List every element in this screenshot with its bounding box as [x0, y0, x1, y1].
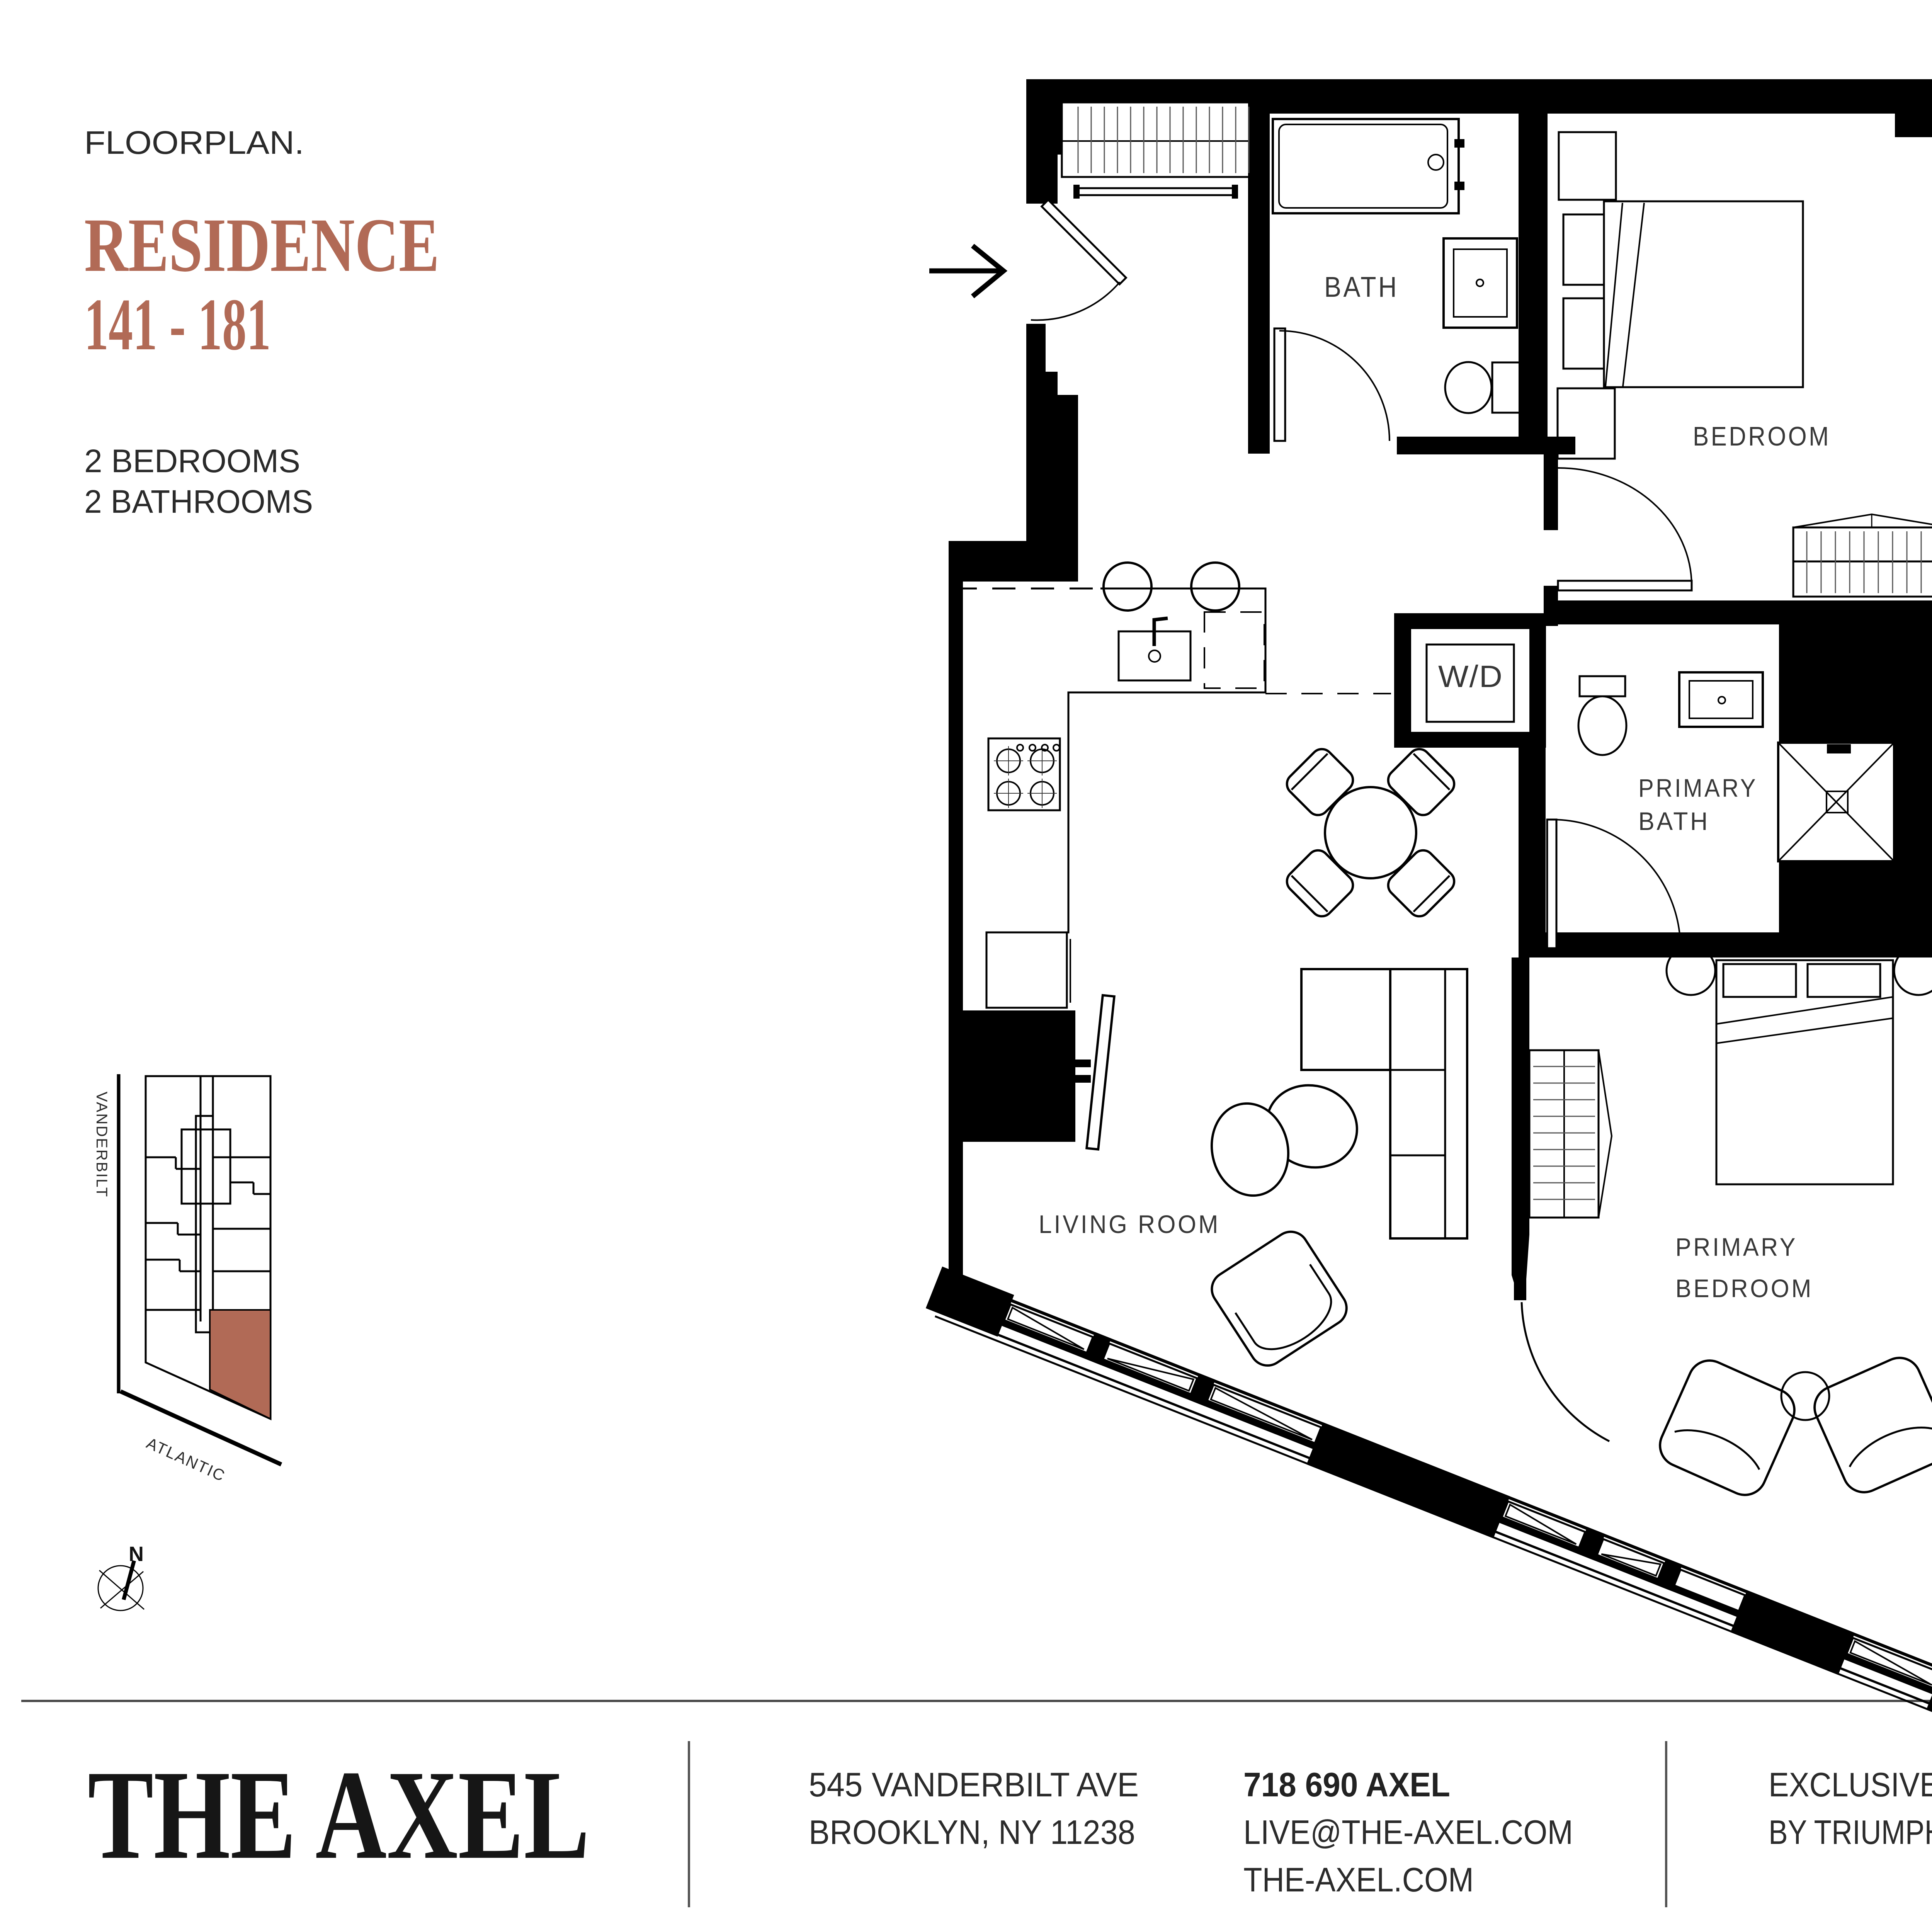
svg-text:PRIMARY: PRIMARY [1675, 1233, 1798, 1261]
svg-text:718 690 AXEL: 718 690 AXEL [1243, 1765, 1450, 1804]
svg-text:545 VANDERBILT AVE: 545 VANDERBILT AVE [809, 1765, 1139, 1804]
svg-text:RESIDENCE: RESIDENCE [84, 203, 439, 288]
svg-text:141 - 181: 141 - 181 [84, 283, 271, 366]
svg-text:BEDROOM: BEDROOM [1693, 421, 1831, 451]
svg-text:PRIMARY: PRIMARY [1638, 774, 1758, 802]
svg-text:BATH: BATH [1324, 271, 1399, 303]
svg-text:W/D: W/D [1438, 659, 1503, 694]
svg-text:BROOKLYN, NY 11238: BROOKLYN, NY 11238 [809, 1813, 1135, 1851]
svg-text:LIVE@THE-AXEL.COM: LIVE@THE-AXEL.COM [1243, 1813, 1573, 1851]
svg-text:2 BEDROOMS: 2 BEDROOMS [84, 443, 300, 479]
svg-text:BY TRIUMPH PROPERTY GROUP: BY TRIUMPH PROPERTY GROUP [1769, 1813, 1932, 1851]
svg-text:BEDROOM: BEDROOM [1675, 1274, 1813, 1303]
svg-text:LIVING ROOM: LIVING ROOM [1039, 1210, 1220, 1238]
svg-text:VANDERBILT: VANDERBILT [93, 1092, 110, 1198]
svg-text:FLOORPLAN.: FLOORPLAN. [84, 124, 304, 161]
svg-text:N: N [129, 1543, 144, 1566]
svg-text:2 BATHROOMS: 2 BATHROOMS [84, 483, 313, 520]
svg-text:BATH: BATH [1638, 807, 1710, 835]
svg-text:THE AXEL: THE AXEL [88, 1744, 590, 1886]
svg-text:THE-AXEL.COM: THE-AXEL.COM [1243, 1861, 1474, 1899]
svg-text:EXCLUSIVE MARKETING & LEASING: EXCLUSIVE MARKETING & LEASING [1769, 1765, 1932, 1804]
